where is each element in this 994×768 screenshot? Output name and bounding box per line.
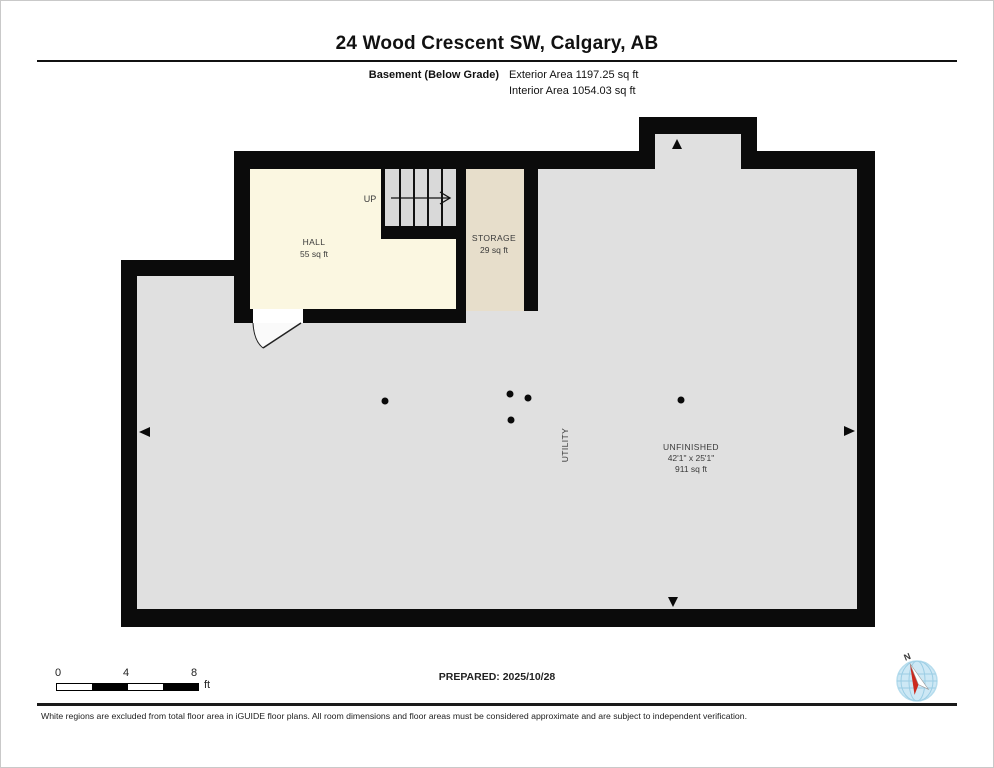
support-post-dot [525, 395, 532, 402]
stairs-up-label: UP [364, 194, 377, 204]
unfinished-room-dimensions: 42'1" x 25'1" [668, 453, 715, 463]
prepared-date: PREPARED: 2025/10/28 [1, 671, 993, 683]
scale-segment [92, 684, 127, 690]
unfinished-floor [137, 276, 857, 609]
scale-segment [128, 684, 163, 690]
scale-segment [163, 684, 198, 690]
support-post-dot [508, 417, 515, 424]
storage-room-area: 29 sq ft [480, 245, 509, 255]
compass-north-label: N [902, 651, 912, 663]
storage-room-label: STORAGE [472, 233, 516, 243]
hall-room-area: 55 sq ft [300, 249, 329, 259]
floor-plan-svg: UP HALL 55 sq ft STORAGE 29 sq ft UTILIT… [1, 1, 994, 768]
support-post-dot [678, 397, 685, 404]
scale-segment [57, 684, 92, 690]
window-well-floor [655, 134, 741, 169]
compass-icon: N [889, 649, 943, 705]
utility-room-label: UTILITY [560, 428, 570, 462]
footer-divider [37, 703, 957, 706]
unfinished-room-area: 911 sq ft [675, 464, 708, 474]
disclaimer-text: White regions are excluded from total fl… [41, 711, 963, 721]
support-post-dot [382, 398, 389, 405]
scale-bar-segments [56, 683, 199, 691]
hall-room-label: HALL [303, 237, 326, 247]
floorplan-page: 24 Wood Crescent SW, Calgary, AB Basemen… [0, 0, 994, 768]
unfinished-floor-upper [538, 169, 857, 276]
support-post-dot [507, 391, 514, 398]
unfinished-room-label: UNFINISHED [663, 442, 719, 452]
